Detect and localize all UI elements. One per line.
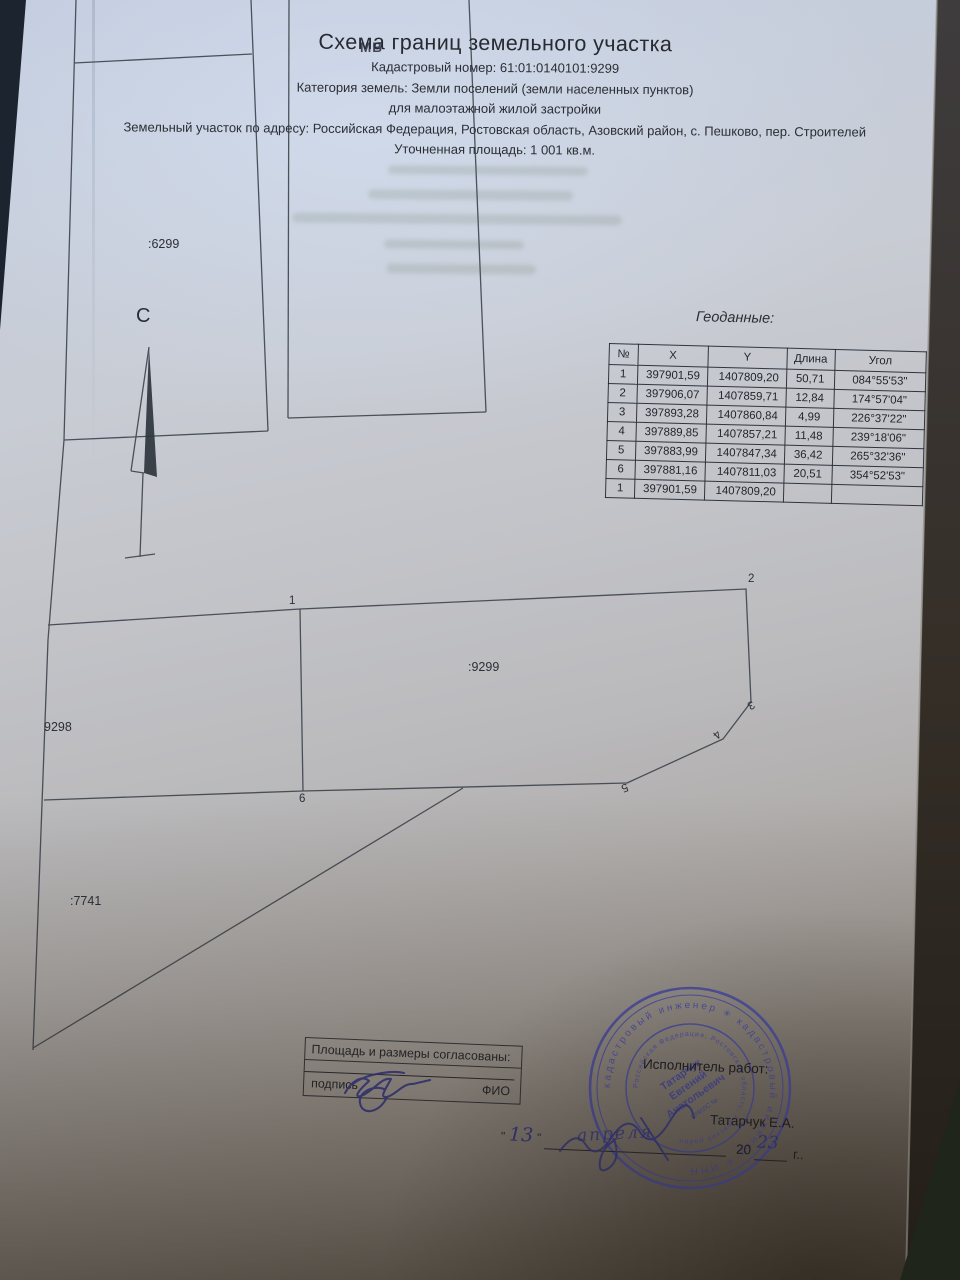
month-scribble	[560, 1105, 694, 1170]
photographed-cadastral-document: 1 2 3 4 5 6 Схема границ земельного учас…	[0, 0, 960, 1280]
handwriting-layer	[0, 0, 960, 1280]
approval-signature	[345, 1072, 430, 1111]
